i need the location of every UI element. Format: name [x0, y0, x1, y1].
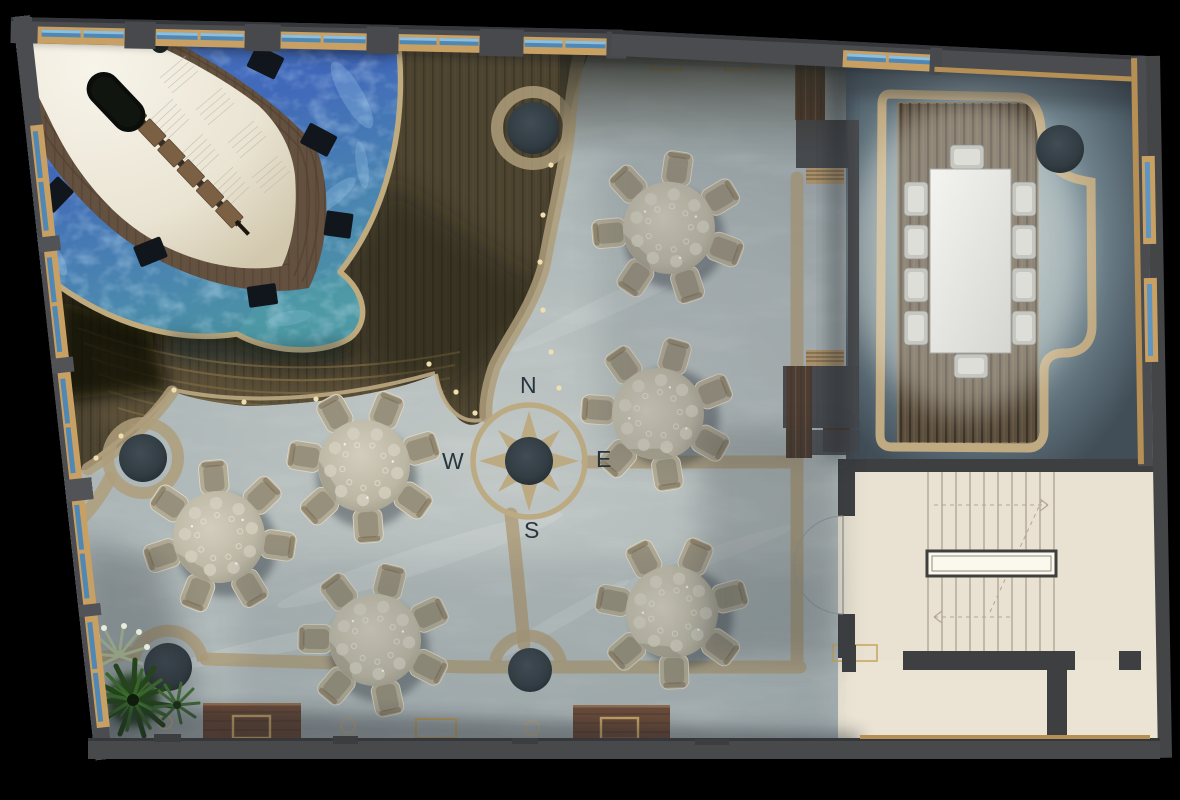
- svg-text:S: S: [524, 517, 539, 543]
- svg-text:N: N: [520, 372, 537, 398]
- svg-text:E: E: [596, 446, 611, 472]
- svg-text:W: W: [442, 448, 464, 474]
